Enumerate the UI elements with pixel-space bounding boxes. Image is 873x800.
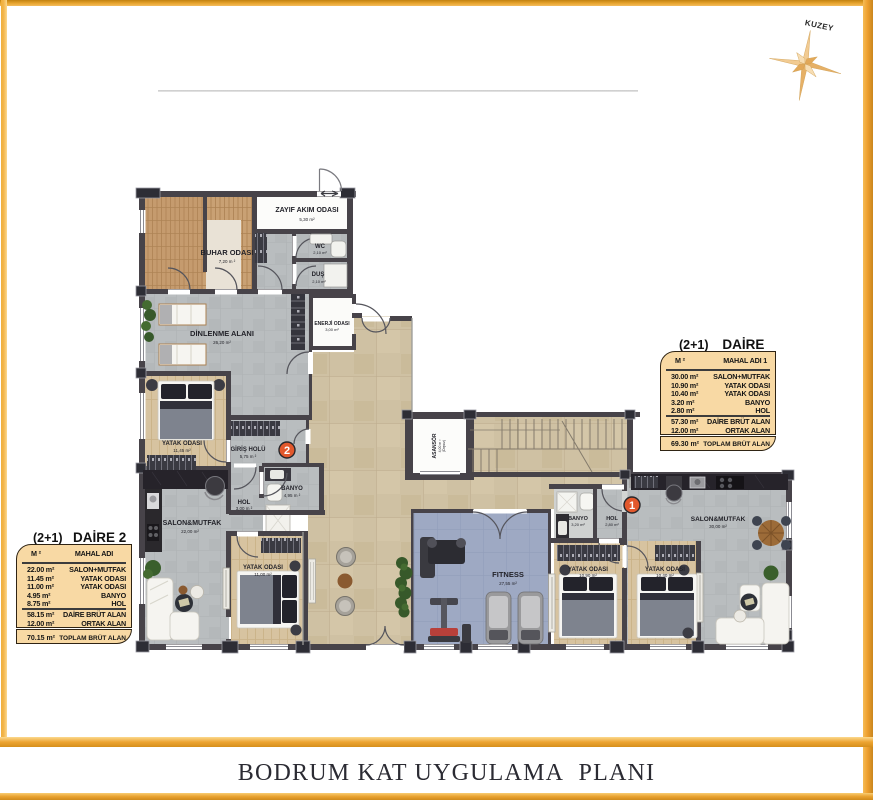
- svg-text:3,20 m²: 3,20 m²: [571, 522, 585, 527]
- svg-text:ZAYIF AKIM ODASI: ZAYIF AKIM ODASI: [275, 207, 338, 214]
- svg-text:FITNESS: FITNESS: [492, 570, 524, 579]
- svg-text:GİRİŞ HOLÜ: GİRİŞ HOLÜ: [230, 446, 265, 453]
- svg-text:3,00 m²: 3,00 m²: [325, 327, 339, 332]
- svg-text:(Dışsız): (Dışsız): [442, 440, 446, 452]
- svg-text:2,10 m²: 2,10 m²: [313, 250, 327, 255]
- svg-text:11,00 m²: 11,00 m²: [254, 572, 272, 577]
- svg-text:YATAK ODASI: YATAK ODASI: [162, 441, 202, 447]
- svg-text:4,95 m ²: 4,95 m ²: [284, 493, 301, 498]
- svg-text:3,00 m ²: 3,00 m ²: [236, 506, 253, 511]
- svg-text:BANYO: BANYO: [281, 486, 303, 492]
- svg-text:2,80 m²: 2,80 m²: [605, 522, 619, 527]
- svg-text:ENERJİ ODASI: ENERJİ ODASI: [314, 320, 350, 327]
- svg-text:DİNLENME ALANI: DİNLENME ALANI: [190, 329, 254, 338]
- svg-text:2,10 m²: 2,10 m²: [312, 279, 326, 284]
- svg-text:22,00 m²: 22,00 m²: [181, 529, 199, 534]
- svg-text:30,00 m²: 30,00 m²: [709, 524, 727, 529]
- svg-text:SALON&MUTFAK: SALON&MUTFAK: [691, 516, 746, 523]
- svg-text:ASANSÖR: ASANSÖR: [431, 433, 438, 458]
- svg-text:7,20 m ²: 7,20 m ²: [219, 259, 236, 264]
- svg-text:BUHAR ODASI: BUHAR ODASI: [201, 248, 254, 257]
- svg-text:YATAK ODASI: YATAK ODASI: [243, 565, 283, 571]
- svg-text:10,40 m²: 10,40 m²: [656, 573, 674, 578]
- svg-text:2: 2: [284, 445, 290, 457]
- svg-text:10,90 m²: 10,90 m²: [579, 573, 597, 578]
- svg-text:11,45 m²: 11,45 m²: [173, 448, 191, 453]
- svg-text:5,30 m²: 5,30 m²: [299, 217, 315, 222]
- svg-text:DUŞ: DUŞ: [312, 272, 325, 278]
- svg-text:27,55 m²: 27,55 m²: [499, 581, 517, 586]
- svg-text:26,20 m²: 26,20 m²: [213, 340, 231, 345]
- svg-text:5,75 m ²: 5,75 m ²: [240, 454, 257, 459]
- svg-text:1: 1: [629, 500, 635, 512]
- svg-text:SALON&MUTFAK: SALON&MUTFAK: [163, 520, 222, 527]
